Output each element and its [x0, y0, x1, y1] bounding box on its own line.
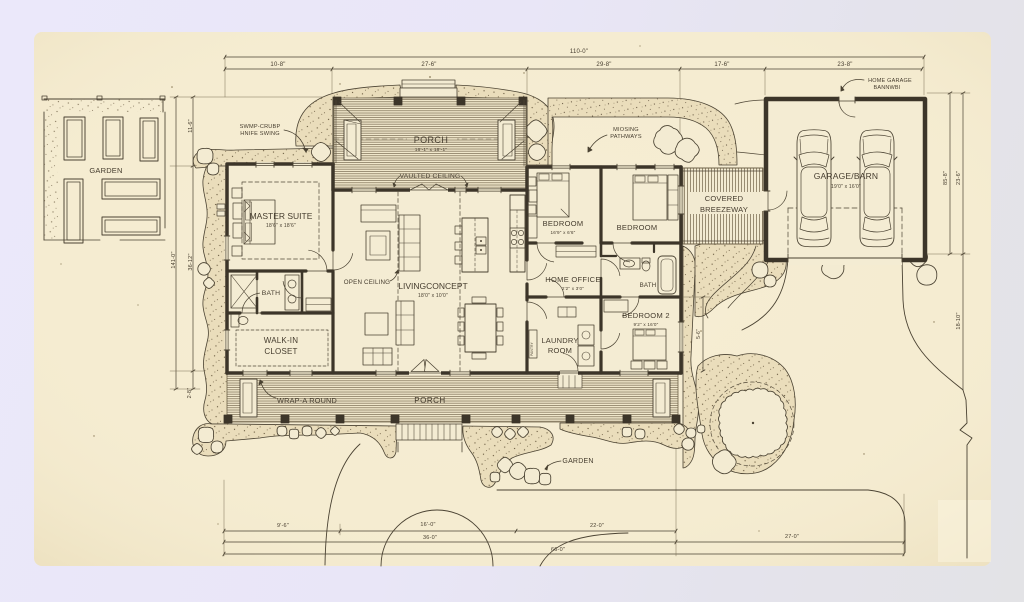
svg-text:ROOM: ROOM [548, 346, 572, 355]
svg-text:WALK-IN: WALK-IN [264, 336, 298, 345]
svg-text:85-8": 85-8" [943, 171, 949, 185]
svg-text:GARAGE/BARN: GARAGE/BARN [814, 171, 879, 181]
svg-text:23-6": 23-6" [956, 171, 962, 185]
svg-text:9'-6": 9'-6" [277, 523, 289, 529]
svg-text:GARDEN: GARDEN [89, 166, 122, 175]
svg-text:MASTER SUITE: MASTER SUITE [250, 211, 313, 221]
svg-text:5-6": 5-6" [696, 329, 702, 339]
svg-text:HOME GARAGE: HOME GARAGE [868, 78, 912, 84]
svg-text:GARDEN: GARDEN [562, 458, 593, 465]
svg-text:BATH: BATH [262, 290, 280, 297]
svg-text:PORCH: PORCH [414, 135, 449, 145]
svg-text:27-6": 27-6" [421, 62, 436, 68]
svg-text:2'2" x 3'0": 2'2" x 3'0" [562, 286, 584, 291]
svg-text:MIOSING: MIOSING [613, 127, 639, 133]
svg-text:9'2" x 16'0": 9'2" x 16'0" [633, 322, 658, 327]
svg-text:OPEN CEILING: OPEN CEILING [344, 279, 390, 286]
svg-text:18-10": 18-10" [956, 312, 962, 329]
svg-text:BEDROOM: BEDROOM [543, 219, 584, 228]
svg-text:16'-0": 16'-0" [420, 522, 435, 528]
svg-text:VAULTED CEILING: VAULTED CEILING [400, 173, 461, 180]
svg-text:17-6": 17-6" [714, 62, 729, 68]
svg-text:COVERED: COVERED [705, 194, 744, 203]
svg-text:PANTRY: PANTRY [530, 341, 534, 356]
svg-text:2-8": 2-8" [187, 388, 193, 399]
svg-text:HNIFE SWING: HNIFE SWING [240, 131, 280, 137]
svg-text:36-12": 36-12" [188, 253, 194, 270]
svg-text:BEDROOM: BEDROOM [617, 223, 658, 232]
svg-text:110-0": 110-0" [570, 49, 588, 55]
svg-text:18'6" x 18'6": 18'6" x 18'6" [266, 223, 296, 229]
svg-text:10-8": 10-8" [270, 62, 285, 68]
svg-text:16'9" x 6'6": 16'9" x 6'6" [550, 230, 575, 235]
svg-text:HOME OFFICE: HOME OFFICE [545, 275, 600, 284]
svg-text:18'0" x 10'0": 18'0" x 10'0" [418, 293, 448, 299]
svg-text:23-8": 23-8" [837, 62, 852, 68]
svg-text:SWMP-CRUBP: SWMP-CRUBP [240, 124, 281, 130]
svg-text:16'-1" x 18'-1": 16'-1" x 18'-1" [415, 147, 448, 153]
svg-text:141-0": 141-0" [171, 251, 177, 268]
svg-text:CLOSET: CLOSET [264, 347, 297, 356]
svg-text:27-0": 27-0" [785, 534, 799, 540]
svg-text:11-6": 11-6" [188, 119, 194, 133]
svg-text:BREEZEWAY: BREEZEWAY [700, 205, 748, 214]
svg-text:LAUNDRY: LAUNDRY [541, 336, 578, 345]
svg-text:BEDROOM 2: BEDROOM 2 [622, 311, 670, 320]
svg-text:36-0": 36-0" [423, 535, 437, 541]
svg-text:19'0" x 16'0": 19'0" x 16'0" [831, 184, 861, 190]
svg-text:BATH: BATH [640, 282, 657, 289]
svg-text:PATHWAYS: PATHWAYS [610, 134, 642, 140]
svg-text:22-0": 22-0" [590, 523, 604, 529]
svg-text:LIVINGCONCEPT: LIVINGCONCEPT [398, 281, 467, 291]
svg-text:BANNWBI: BANNWBI [873, 85, 900, 91]
svg-text:29-8": 29-8" [596, 62, 611, 68]
svg-text:WRAP-A ROUND: WRAP-A ROUND [277, 396, 337, 405]
svg-text:PORCH: PORCH [414, 396, 445, 405]
